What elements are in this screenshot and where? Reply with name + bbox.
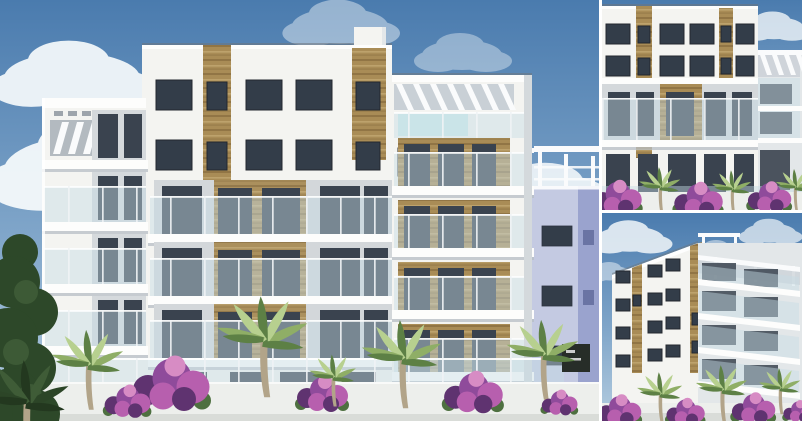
balcony-floor <box>148 242 396 308</box>
balcony-floor <box>148 180 396 246</box>
corner-perspective-scene <box>602 213 802 421</box>
timber-accent-strip <box>632 264 642 373</box>
main-render-scene <box>0 0 599 421</box>
facade <box>602 4 758 202</box>
blue-building-window <box>542 286 572 306</box>
balcony-floor <box>602 84 758 150</box>
property-render-collage <box>0 0 802 421</box>
facade-detail-scene <box>602 0 802 210</box>
facade-detail-panel <box>602 0 802 210</box>
main-render-panel <box>0 0 599 421</box>
rooftop-box <box>354 27 386 45</box>
corner-perspective-panel <box>602 213 802 421</box>
roof-terrace-rail <box>394 112 526 138</box>
blue-building-window <box>542 226 572 246</box>
